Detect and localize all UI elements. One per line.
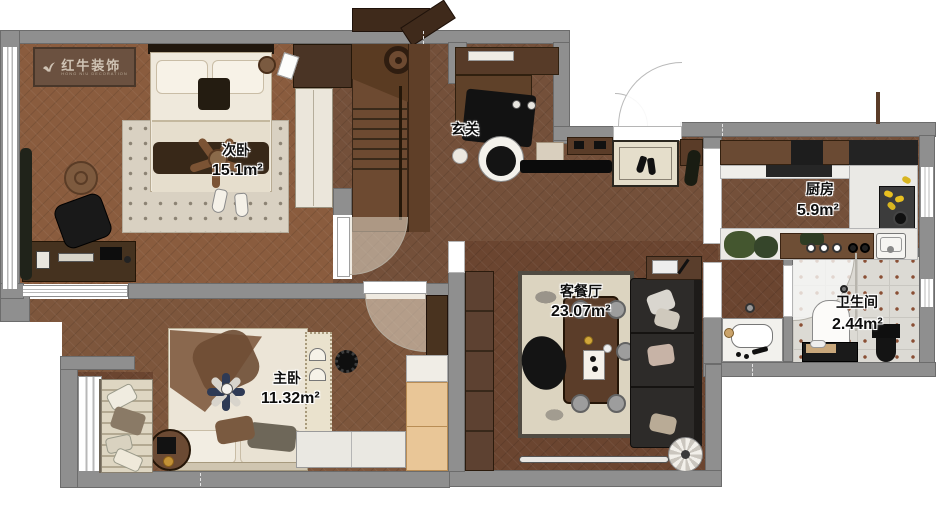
secondary-wardrobe-divider [313,90,314,206]
cabinet-item [574,141,584,149]
bath-door-opening [783,265,793,317]
entry-bench [520,160,612,173]
entry-desk-tray [468,51,514,61]
window-kitchen-right [920,166,934,218]
label-master-bedroom: 主卧 [273,368,301,388]
area-master-bedroom: 11.32m² [261,390,320,408]
secondary-wardrobe [295,88,333,208]
area-living-dining: 23.07m² [551,303,611,321]
desk-dot [124,256,131,263]
wall-master-right [448,271,465,472]
area-bathroom: 2.44m² [832,316,883,334]
secondary-cushion [198,78,230,110]
kitchen-cabinet-dark [791,140,823,165]
curtain-rod [519,456,669,463]
slipper [234,192,249,217]
master-cabinet-line [406,426,448,427]
master-door-leaf [363,281,427,294]
secondary-door-leaf [337,217,350,277]
entry-stool [452,148,468,164]
wall-living-right-lower [705,364,722,487]
logo-title: 红牛装饰 [61,59,127,72]
gear-decor [335,350,358,373]
wall-living-bottom [448,470,722,487]
kitchen-plant [724,231,756,258]
master-cabinet-top [406,355,448,382]
dining-chair [571,394,590,413]
floor-fan-hub [681,450,690,459]
desk-photo-frame [36,251,50,269]
bedside-box [157,437,176,454]
wall-joint [722,124,723,136]
corridor-drain [745,303,755,313]
window-bath-right [920,278,934,308]
vanity-handle [724,328,734,338]
kitchen-pot [893,211,908,226]
burner [819,243,829,253]
label-kitchen: 厨房 [806,179,834,199]
table-gold-item [584,336,593,345]
burner-dark [848,243,858,253]
wall-master-bottom [60,471,450,488]
area-secondary-bedroom: 15.1m² [212,162,263,180]
burner [806,243,816,253]
window-mid-left [22,285,128,297]
wall-balcony-top [60,356,135,370]
desk-keyboard [58,253,94,262]
tray-dot [590,356,596,362]
pouf-ring [74,171,88,185]
table-tray [583,350,605,380]
kitchen-cabinet-dark [849,140,918,165]
wall-joint [752,364,753,376]
plant-strip [20,148,32,280]
kitchen-faucet [887,246,894,253]
stairs-rope-center [395,57,402,64]
vanity-dot [744,354,749,359]
logo-bull-icon [41,59,57,75]
stairs-lower-strip [408,44,430,232]
dining-chair [607,394,626,413]
tray-dot [592,366,598,372]
label-bathroom: 卫生间 [836,292,878,312]
hall-niche [448,241,465,273]
ceiling-fan-master [204,366,248,410]
wall-joint [423,31,424,44]
label-entry: 玄关 [451,119,479,139]
table-cup [603,344,612,353]
wall-living-right-upper [703,316,722,364]
master-slipper-arch [309,348,326,361]
sofa-seam [631,332,701,334]
living-bookshelf [465,271,494,471]
desk-pad [100,247,122,260]
sofa-back [694,280,702,446]
logo-sign: 红牛装饰 HONG NIU DECORATION [33,47,136,87]
kitchen-pipe [876,92,880,124]
entry-door-leaf-right [618,62,682,126]
wall-joint [200,473,201,486]
kitchen-hood [766,165,832,177]
bath-roll [810,340,826,348]
secondary-closet [293,44,352,88]
master-slipper-arch [309,368,326,381]
cabinet-item [594,141,606,149]
label-secondary-bedroom: 次卧 [222,140,250,160]
burner [832,243,842,253]
wall-secondary-right [333,188,352,217]
label-living-dining: 客餐厅 [560,281,602,301]
sofa-seam [631,386,701,388]
wall-top-right [680,122,936,137]
master-pillow-gray [247,422,297,453]
master-headboard [168,462,308,471]
piano-knob [527,101,536,110]
floor-plan: 红牛装饰 HONG NIU DECORATION [0,0,940,520]
logo-subtitle: HONG NIU DECORATION [61,72,127,76]
wall-balcony-left [60,356,78,488]
entry-threshold [613,126,682,141]
burner-dark [860,243,870,253]
wall-bath-bottom [703,362,936,377]
vanity-dot [736,352,741,357]
outside-mask [0,322,62,520]
window-left [2,46,18,290]
piano-knob [512,100,521,109]
side-table-box [652,260,678,274]
kitchen-plant [754,236,778,258]
stairs-rail [399,86,402,220]
bedside-gold [163,456,174,467]
master-dresser-line [351,432,352,467]
vanity-sink [731,324,773,348]
wall-top [8,30,570,44]
living-side-opening [703,262,722,318]
area-kitchen: 5.9m² [797,202,839,220]
nightstand-lamp [258,56,276,74]
entry-round-chair-seat [486,146,516,176]
wall-mid-horiz-b [128,283,366,299]
sofa-pillow [647,343,676,366]
toilet-bowl [876,338,896,362]
